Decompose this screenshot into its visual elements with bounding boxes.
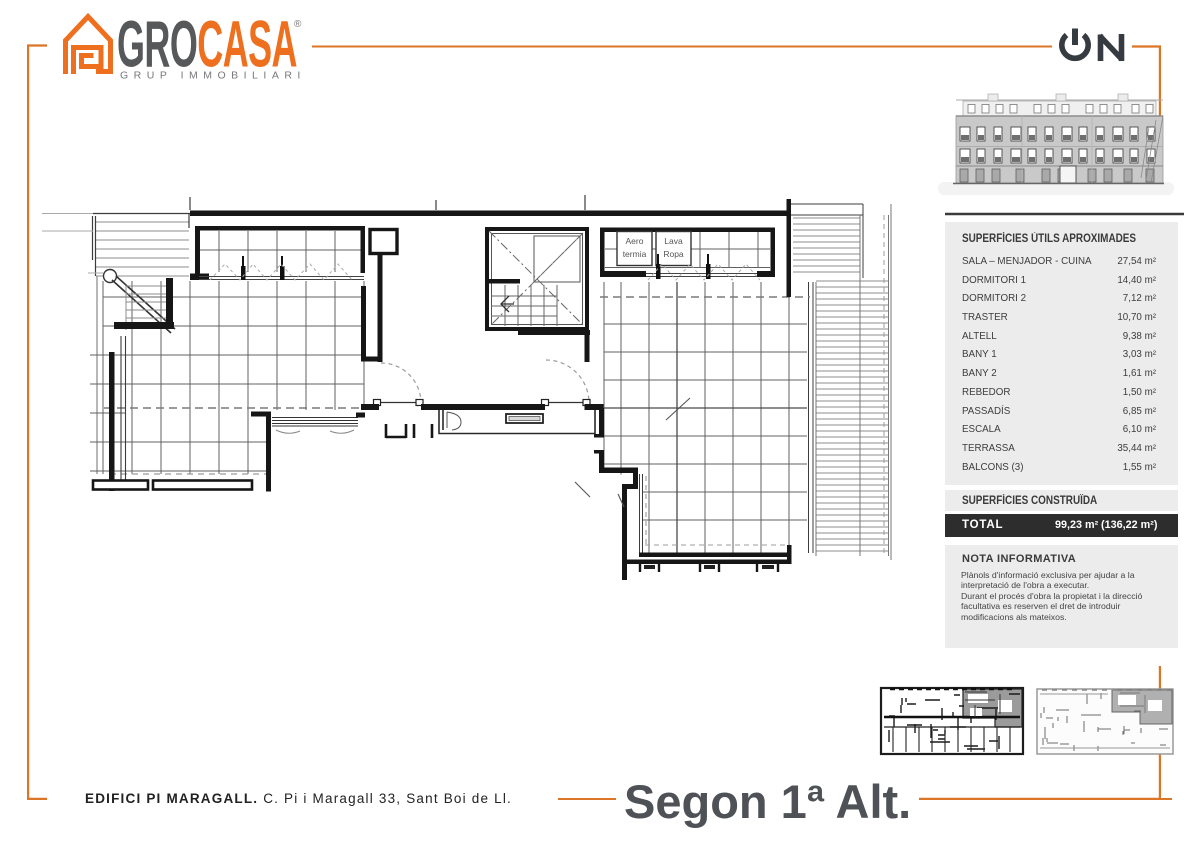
svg-text:Aero: Aero [626, 236, 644, 246]
svg-text:Ropa: Ropa [663, 249, 684, 259]
svg-text:®: ® [294, 19, 302, 30]
svg-text:termia: termia [623, 249, 647, 259]
svg-text:Lava: Lava [664, 236, 683, 246]
svg-text:GRUP IMMOBILIARI: GRUP IMMOBILIARI [120, 70, 306, 82]
